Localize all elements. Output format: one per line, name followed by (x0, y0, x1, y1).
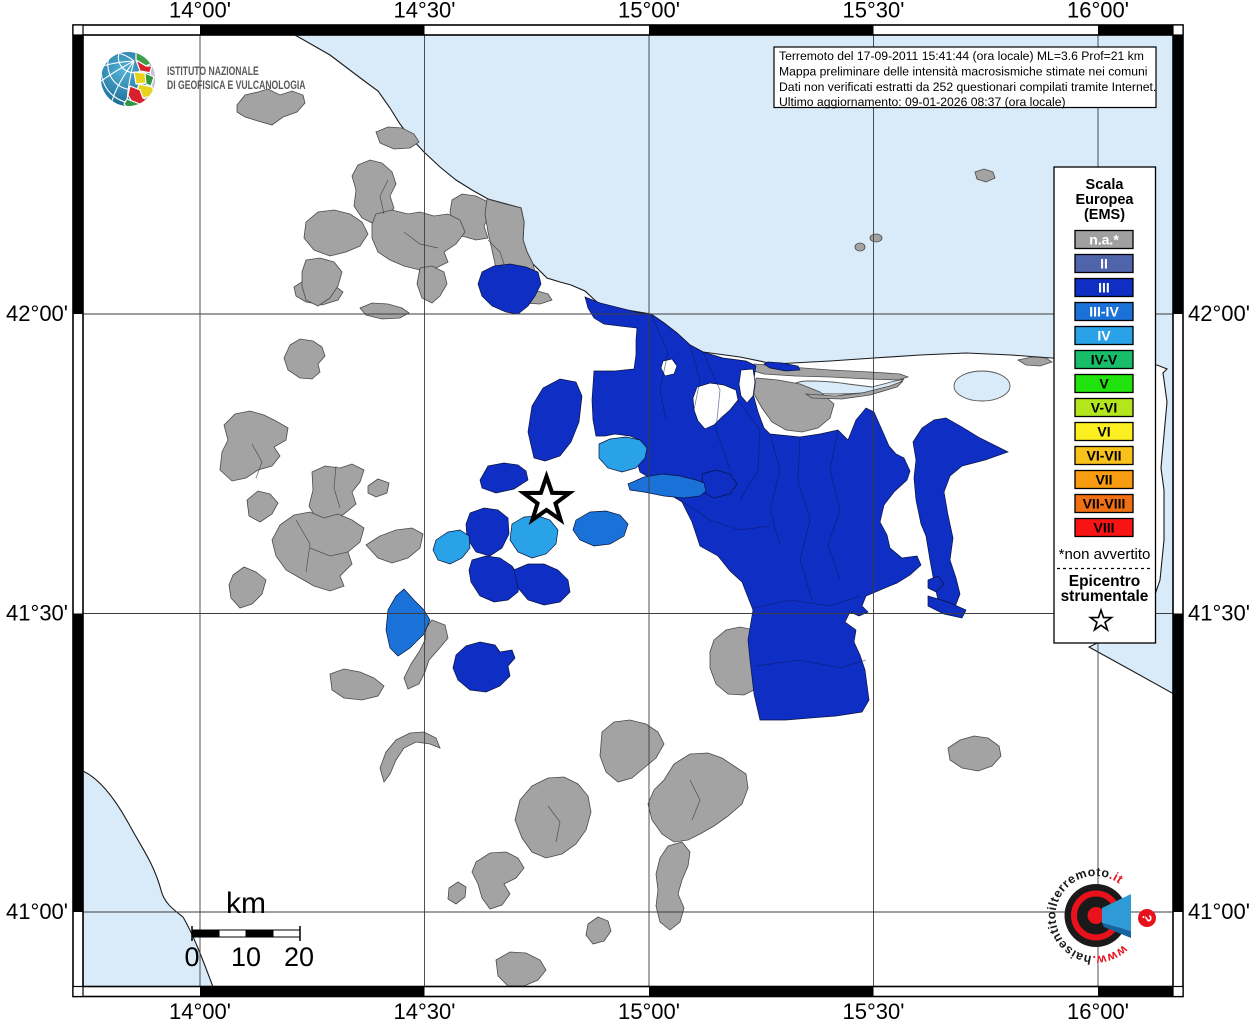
svg-text:41°00': 41°00' (6, 899, 68, 924)
svg-text:n.a.*: n.a.* (1089, 232, 1119, 248)
svg-text:IV-V: IV-V (1091, 352, 1118, 368)
svg-text:41°00': 41°00' (1188, 899, 1250, 924)
svg-text:V-VI: V-VI (1091, 400, 1117, 416)
svg-text:42°00': 42°00' (1188, 301, 1250, 326)
svg-text:Europea: Europea (1075, 192, 1134, 208)
svg-text:VIII: VIII (1093, 520, 1114, 536)
svg-text:42°00': 42°00' (6, 301, 68, 326)
svg-text:ISTITUTO NAZIONALE: ISTITUTO NAZIONALE (167, 66, 259, 78)
svg-text:41°30': 41°30' (1188, 601, 1250, 626)
svg-text:VI: VI (1097, 424, 1110, 440)
svg-text:14°00': 14°00' (169, 0, 231, 23)
svg-text:IV: IV (1097, 328, 1111, 344)
svg-text:15°00': 15°00' (618, 0, 680, 23)
svg-text:10: 10 (231, 942, 261, 972)
svg-text:strumentale: strumentale (1061, 588, 1149, 605)
svg-text:15°00': 15°00' (618, 999, 680, 1024)
svg-text:Ultimo aggiornamento: 09-01-20: Ultimo aggiornamento: 09-01-2026 08:37 (… (779, 95, 1066, 109)
svg-text:16°00': 16°00' (1067, 999, 1129, 1024)
svg-text:II: II (1100, 256, 1108, 272)
svg-text:*non avvertito: *non avvertito (1059, 546, 1151, 563)
svg-text:VII-VIII: VII-VIII (1083, 496, 1126, 512)
svg-text:V: V (1099, 376, 1109, 392)
svg-text:(EMS): (EMS) (1084, 207, 1125, 223)
svg-text:41°30': 41°30' (6, 601, 68, 626)
svg-text:14°00': 14°00' (169, 999, 231, 1024)
svg-text:III: III (1098, 280, 1110, 296)
svg-text:0: 0 (184, 942, 199, 972)
svg-text:Mappa preliminare delle intens: Mappa preliminare delle intensità macros… (779, 65, 1148, 79)
svg-text:Scala: Scala (1086, 177, 1125, 193)
svg-text:III-IV: III-IV (1089, 304, 1119, 320)
svg-text:14°30': 14°30' (394, 999, 456, 1024)
svg-text:15°30': 15°30' (843, 0, 905, 23)
svg-text:20: 20 (284, 942, 314, 972)
svg-text:VII: VII (1095, 472, 1112, 488)
svg-text:Dati non verificati estratti d: Dati non verificati estratti da 252 ques… (779, 80, 1156, 94)
svg-text:VI-VII: VI-VII (1086, 448, 1121, 464)
svg-text:14°30': 14°30' (394, 0, 456, 23)
svg-text:DI GEOFISICA E VULCANOLOGIA: DI GEOFISICA E VULCANOLOGIA (167, 80, 306, 92)
svg-text:16°00': 16°00' (1067, 0, 1129, 23)
svg-text:Terremoto del 17-09-2011 15:41: Terremoto del 17-09-2011 15:41:44 (ora l… (779, 49, 1144, 63)
svg-text:km: km (226, 887, 266, 920)
svg-text:15°30': 15°30' (843, 999, 905, 1024)
